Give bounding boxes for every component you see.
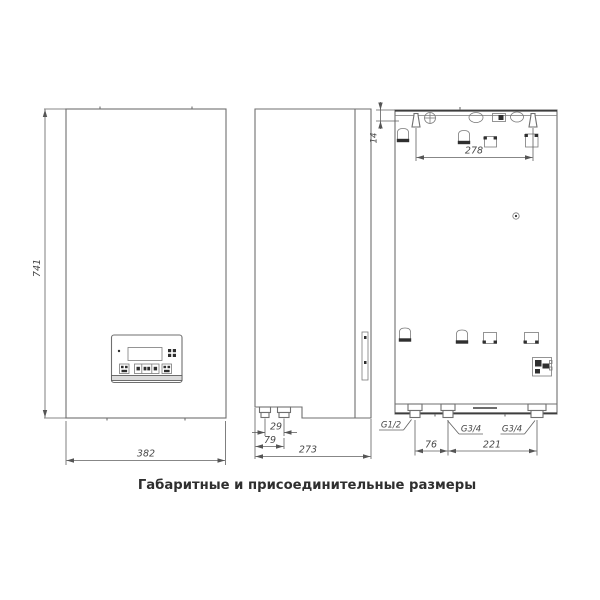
pipe-connection-3	[528, 404, 546, 418]
conn-left-text: G1/2	[381, 421, 401, 431]
vent-grille	[112, 376, 183, 381]
dim-rear-spacing-left-label: 76	[425, 440, 437, 451]
conn-right-text: G3/4	[502, 425, 522, 435]
dim-front-height-label: 741	[32, 259, 43, 277]
led-indicator	[118, 350, 120, 352]
drawing-canvas: 741 382 29	[0, 0, 600, 600]
dim-rear-spacing-right-label: 221	[483, 440, 501, 451]
rear-view: 278 14	[370, 102, 558, 456]
conn-label-right: G3/4	[501, 421, 536, 435]
rail-screw-top	[364, 336, 367, 339]
pipe-connection-1	[408, 404, 422, 418]
dim-rear-top-offset-label: 14	[370, 133, 380, 144]
rail-screw-bottom	[364, 361, 367, 364]
dim-front-width: 382	[66, 421, 226, 465]
pipe-connection-2	[441, 404, 455, 418]
conn-label-left: G1/2	[379, 420, 412, 431]
drain-hole-center	[515, 215, 517, 217]
side-pipe-stub-1	[260, 407, 271, 418]
front-view: 741 382	[32, 107, 226, 466]
control-panel	[112, 335, 183, 383]
side-pipe-stub-2	[278, 407, 291, 418]
dim-front-height: 741	[32, 109, 66, 418]
dim-front-width-label: 382	[137, 449, 155, 460]
technical-drawing: 741 382 29	[0, 0, 600, 600]
side-view-outline	[255, 109, 371, 418]
dim-side-nozzle-spacing: 29	[252, 419, 297, 437]
dim-side-nozzle-spacing-label: 29	[270, 422, 282, 433]
conn-mid-text: G3/4	[461, 425, 481, 435]
conn-label-mid: G3/4	[448, 421, 484, 435]
caption: Габаритные и присоединительные размеры	[138, 477, 476, 493]
dim-side-depth-label: 273	[299, 445, 317, 456]
dim-rear-hanger-spacing-label: 278	[465, 146, 483, 157]
dim-side-nozzle-offset-label: 79	[264, 435, 276, 446]
screw-head	[425, 113, 436, 124]
side-view: 29 79 273	[252, 109, 371, 459]
